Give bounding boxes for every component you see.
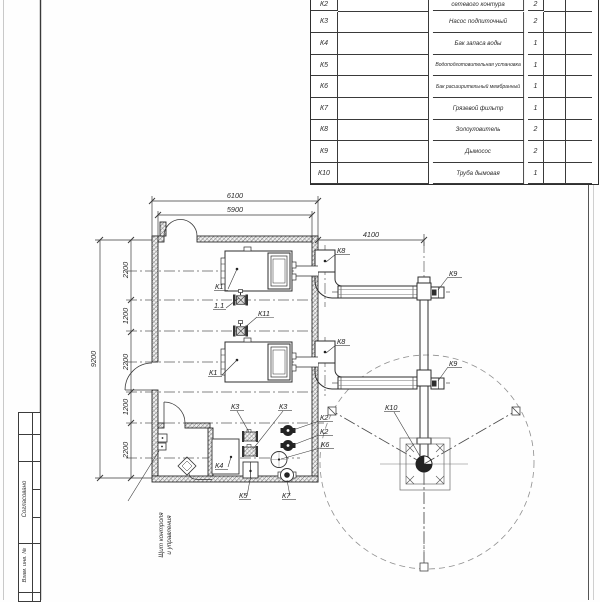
table-cell-qty: 1 [528,55,544,77]
equipment-table: К2 сетевого контура 2 К3 Насос подпиточн… [310,0,599,185]
table-cell-pos: К6 [311,76,338,98]
table-cell-name: Золоуловитель [433,120,524,142]
valve-k11 [233,321,248,337]
label-tank-k6: К6 [321,440,330,449]
table-cell-qty: 1 [528,98,544,120]
table-cell-name: Грязевой фильтр [433,98,524,120]
label-boiler1: К1 [215,282,223,291]
table-cell-pos: К3 [311,12,338,34]
dim-chain-3: 1200 [121,399,130,415]
table-cell-pos: К7 [311,98,338,120]
pump-k2-1 [281,425,296,436]
label-fan-k9-2: К9 [449,359,457,368]
dim-chain-2: 2200 [121,354,130,371]
label-ash-k8-1: К8 [337,246,346,255]
table-cell-name: Дымосос [433,141,524,163]
control-panel [158,434,167,450]
label-valve-k11: К11 [258,309,270,318]
stamp-agreed-label: Согласовано [22,459,28,539]
label-unit-k5: К5 [239,491,248,500]
table-cell-pos: К2 [311,0,338,11]
dim-chain-0: 2200 [121,262,130,279]
dim-width-inner: 5900 [227,205,243,214]
expansion-tank-k6 [271,452,287,468]
label-pump-k2-1: К2 [320,413,328,422]
label-chimney-k10: К10 [385,403,397,412]
drawing-sheet: 6100 5900 4100 9200 2200 1200 2200 1200 … [0,0,600,600]
label-fan-k9-1: К9 [449,269,457,278]
table-cell-qty: 1 [528,163,544,185]
table-cell-qty: 2 [528,12,544,34]
pump-k2-2 [281,440,296,451]
label-pump-k2-2: К2 [320,427,328,436]
table-cell-pos: К8 [311,120,338,142]
table-cell-name: Бак расширительный мембранный [433,76,524,98]
dim-flue-offset: 4100 [363,230,379,239]
table-cell-name: Насос подпиточный [433,12,524,34]
pump-k3-2 [242,445,258,458]
label-ash-k8-2: К8 [337,337,346,346]
duct-junction-1 [417,283,431,300]
label-filter-k7: К7 [282,491,291,500]
table-cell-qty: 1 [528,76,544,98]
dim-chain-1: 1200 [121,308,130,324]
dim-depth-total: 9200 [89,351,98,367]
label-valve11: 1.1 [214,301,224,310]
label-pump-k3-1: К3 [231,402,239,411]
table-cell-pos: К5 [311,55,338,77]
doors [125,220,197,424]
table-cell-qty: 2 [528,141,544,163]
table-cell-code [338,0,429,12]
control-panel-note: Щит контроля и управления [158,500,176,570]
label-pump-k3-2: К3 [279,402,287,411]
table-cell-name: сетевого контура [433,0,524,11]
table-cell-pos: К9 [311,141,338,163]
table-cell-pos: К4 [311,33,338,55]
table-cell-pos: К10 [311,163,338,185]
pump-k3-1 [242,430,258,443]
table-cell-qty: 2 [528,0,544,11]
flue-system [315,250,444,457]
water-treatment-k5 [243,462,258,478]
boiler-k1-1 [221,247,318,291]
label-tank-k4: К4 [215,461,223,470]
dim-chain-4: 2200 [121,442,130,459]
table-cell-qty: 2 [528,120,544,142]
table-cell-qty: 1 [528,33,544,55]
stamp-next-box [18,592,41,602]
table-cell-name: Труба дымовая [433,163,524,185]
label-boiler2: К1 [209,368,217,377]
boiler-k1-2 [221,338,318,382]
table-cell-name: Бак запаса воды [433,33,524,55]
table-cell-name: Водоподготовительная установка [433,55,524,77]
dim-width-outer: 6100 [227,191,243,200]
duct-junction-2 [417,370,431,386]
valve-1-1 [233,290,248,306]
stamp-inv-label: Взам. инв. № [22,542,28,588]
